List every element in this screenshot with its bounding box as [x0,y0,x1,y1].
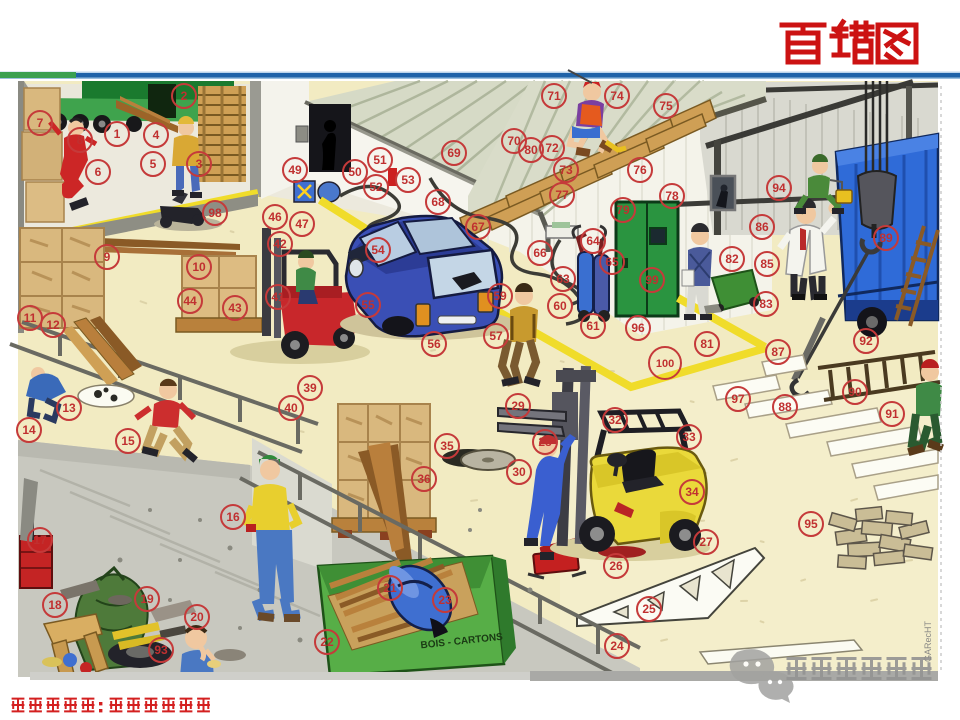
svg-text:67: 67 [471,220,485,234]
svg-text:73: 73 [559,163,573,177]
svg-text:49: 49 [288,163,302,177]
svg-text:66: 66 [533,246,547,260]
svg-text:95: 95 [804,517,818,531]
svg-text:63: 63 [556,272,570,286]
svg-text:56: 56 [427,337,441,351]
svg-text:77: 77 [555,188,569,202]
svg-text:4: 4 [153,128,160,142]
svg-text:40: 40 [284,401,298,415]
svg-text:97: 97 [731,392,745,406]
svg-text:8: 8 [77,133,84,147]
svg-text:83: 83 [759,297,773,311]
svg-text:88: 88 [778,400,792,414]
svg-text:46: 46 [268,210,282,224]
svg-text:57: 57 [489,329,503,343]
svg-text:71: 71 [547,89,561,103]
svg-text:GARecHT: GARecHT [923,620,933,662]
svg-text:78: 78 [665,189,679,203]
svg-text:80: 80 [524,143,538,157]
svg-text:15: 15 [121,434,135,448]
svg-text:94: 94 [772,181,786,195]
svg-text:41: 41 [271,290,285,304]
svg-text:79: 79 [616,203,630,217]
svg-text:86: 86 [755,220,769,234]
svg-text:10: 10 [192,260,206,274]
svg-text:92: 92 [859,334,873,348]
svg-text:25: 25 [642,602,656,616]
svg-text:90: 90 [848,385,862,399]
svg-text:35: 35 [440,439,454,453]
svg-text:96: 96 [631,321,645,335]
svg-text:47: 47 [295,217,309,231]
svg-text:34: 34 [685,485,699,499]
svg-text:36: 36 [417,472,431,486]
svg-text:100: 100 [656,358,674,370]
svg-text:65: 65 [605,255,619,269]
svg-text:75: 75 [659,99,673,113]
svg-text:29: 29 [511,399,525,413]
svg-text:32: 32 [608,413,622,427]
svg-text:22: 22 [320,635,334,649]
svg-text:5: 5 [150,157,157,171]
svg-text:74: 74 [610,89,624,103]
svg-text:9: 9 [104,250,111,264]
svg-text:33: 33 [682,430,696,444]
svg-text:19: 19 [140,592,154,606]
svg-text:55: 55 [361,298,375,312]
svg-text:7: 7 [37,116,44,130]
svg-text:61: 61 [586,319,600,333]
svg-text:98: 98 [208,206,222,220]
svg-text:44: 44 [183,294,197,308]
svg-text:91: 91 [885,407,899,421]
svg-text:14: 14 [22,423,36,437]
svg-text:60: 60 [553,299,567,313]
svg-text:17: 17 [33,533,47,547]
svg-text:27: 27 [699,535,713,549]
svg-text:69: 69 [447,146,461,160]
svg-text:76: 76 [633,163,647,177]
svg-text:1: 1 [114,127,121,141]
svg-text:20: 20 [190,610,204,624]
svg-text:99: 99 [645,273,659,287]
svg-text:53: 53 [401,173,415,187]
svg-text:21: 21 [383,581,397,595]
svg-text:51: 51 [373,153,387,167]
svg-text:72: 72 [545,141,559,155]
svg-text:12: 12 [46,318,60,332]
svg-text:24: 24 [610,639,624,653]
svg-text:39: 39 [303,381,317,395]
svg-text:13: 13 [62,401,76,415]
svg-text:23: 23 [438,593,452,607]
svg-text:11: 11 [24,311,37,325]
svg-text:81: 81 [700,337,714,351]
svg-text:50: 50 [348,165,362,179]
svg-text:16: 16 [226,510,240,524]
svg-text:30: 30 [512,465,526,479]
svg-text:18: 18 [48,598,62,612]
svg-text:68: 68 [431,195,445,209]
svg-text:6: 6 [95,165,102,179]
svg-text:3: 3 [196,157,203,171]
svg-text:59: 59 [493,289,507,303]
svg-text:2: 2 [181,89,188,103]
svg-text:54: 54 [371,243,385,257]
svg-text:42: 42 [273,237,287,251]
svg-text:43: 43 [228,301,242,315]
svg-text:52: 52 [369,180,383,194]
svg-text:64: 64 [586,234,600,248]
svg-text:26: 26 [609,559,623,573]
svg-text:85: 85 [760,257,774,271]
svg-text:82: 82 [725,252,739,266]
svg-text:28: 28 [538,435,552,449]
svg-text:87: 87 [771,345,785,359]
svg-text:93: 93 [154,643,168,657]
svg-text:89: 89 [879,231,893,245]
